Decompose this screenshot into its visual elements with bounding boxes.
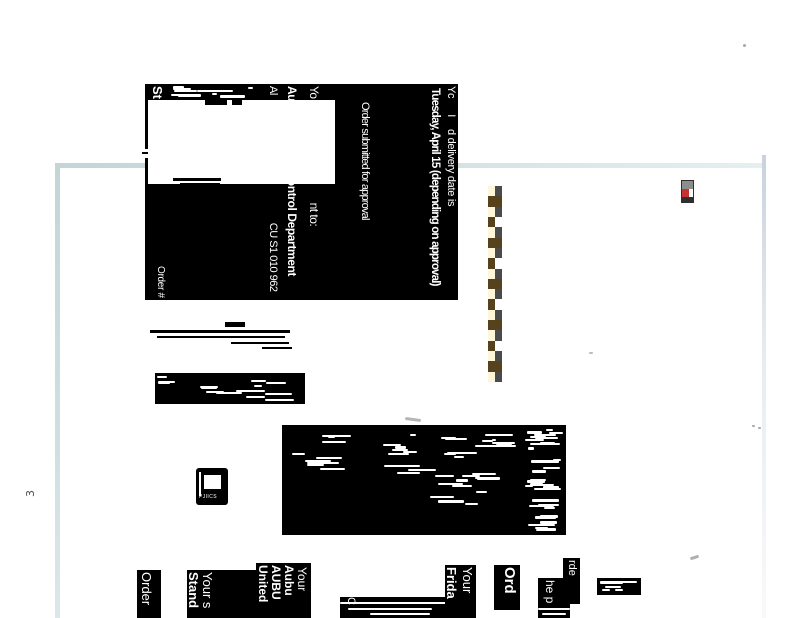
footer-ord-text: Ord [502, 567, 517, 594]
checker-row [488, 248, 502, 258]
scan-streak [150, 330, 290, 333]
scan-speckle [589, 352, 593, 354]
footer-strip-streaked: C [340, 597, 452, 618]
logo-stamp-line [199, 472, 201, 496]
address-code-text: CU S1 010 962 [267, 223, 279, 292]
footer-strip-standard: Your s Stand [187, 570, 257, 618]
checker-row [488, 289, 502, 299]
footer-order-text: Order [140, 572, 153, 605]
footer-your-b-text: Your [461, 567, 474, 593]
garbled-text-noise [157, 375, 177, 387]
footer-united-text: United [257, 565, 269, 602]
department-text: tion Control Department [285, 147, 299, 276]
page-edge-left [55, 163, 60, 618]
garbled-body-block [282, 425, 566, 535]
footer-rde-text: rde [566, 560, 577, 576]
footer-stand-text: Stand [187, 572, 200, 608]
scan-streak [157, 336, 285, 338]
scan-artifact [142, 152, 148, 154]
logo-stamp-glyphs: PJIICS [199, 494, 217, 500]
scan-speckle [752, 425, 755, 427]
page-edge-right [762, 155, 766, 618]
garbled-separator: I [445, 114, 457, 117]
footer-frida-text: Frida [445, 567, 458, 599]
garbled-text-strip [155, 373, 305, 404]
garbled-text-noise [525, 428, 563, 532]
white-redaction-box [148, 100, 335, 184]
scan-artifact [180, 183, 220, 186]
checker-row [488, 258, 502, 268]
garbled-text-noise [195, 375, 295, 402]
header-corner-text: St [151, 86, 164, 99]
order-status-text: Order submitted for approval [359, 102, 370, 220]
checker-row [488, 341, 502, 351]
footer-strip-rde: rde [563, 558, 580, 604]
delivery-date-intro-line: YcId delivery date is [445, 86, 456, 206]
checker-row [488, 186, 502, 196]
address-line: AlCU S1 010 962 [267, 86, 278, 292]
tiny-thumbnail-icon [681, 180, 694, 203]
logo-stamp-icon: PJIICS [196, 468, 228, 505]
sent-to-fragment-end: nt to: [307, 203, 321, 227]
garbled-text-noise [287, 433, 352, 471]
logo-stamp-screen [204, 475, 221, 489]
scan-streak [262, 347, 292, 349]
scan-streak [225, 322, 245, 327]
scan-streak [348, 608, 432, 610]
sent-to-fragment-start: Yo [307, 86, 321, 99]
checker-row [488, 217, 502, 227]
footer-your-s-text: Your s [201, 572, 214, 608]
footer-aubu-caps-text: AUBU [270, 565, 282, 600]
checker-row [488, 196, 502, 206]
scan-streak [542, 613, 566, 615]
checker-row [488, 238, 502, 248]
scan-artifact [173, 178, 221, 181]
footer-aubu-text: Aubu [283, 565, 295, 596]
scan-streak [538, 608, 570, 610]
sent-to-line: Yont to: [308, 86, 320, 226]
org-fragment: Au [285, 86, 299, 101]
color-checker-strip [488, 186, 502, 382]
footer-strip-order: Order [137, 570, 161, 618]
scan-artifact [186, 188, 214, 190]
footer-strip-address: Your Aubu AUBU United [256, 563, 311, 618]
order-header-block: YcId delivery date is Tuesday, April 15 … [145, 84, 458, 300]
department-line: Aution Control Department [286, 86, 298, 276]
scan-streak [370, 613, 430, 615]
scan-speckle [758, 427, 761, 429]
checker-row [488, 361, 502, 371]
garbled-text-noise [367, 430, 427, 460]
scan-streak [340, 602, 452, 604]
delivery-date-text: Tuesday, April 15 (depending on approval… [429, 88, 441, 286]
order-number-label: Order # [155, 266, 165, 298]
checker-row [488, 330, 502, 340]
checker-row [488, 372, 502, 382]
checker-row [488, 299, 502, 309]
scan-speckle [690, 555, 699, 561]
checker-row [488, 207, 502, 217]
checker-row [488, 310, 502, 320]
checker-row [488, 351, 502, 361]
checker-row [488, 269, 502, 279]
scanned-page: YcId delivery date is Tuesday, April 15 … [0, 0, 800, 618]
footer-your-text: Your [296, 567, 308, 591]
footer-strip-noise [597, 578, 641, 595]
checker-row [488, 227, 502, 237]
page-number: 3 [24, 490, 37, 497]
address-fragment: Al [267, 86, 279, 95]
thumbnail-gray-area [682, 181, 693, 189]
thumbnail-dark-area [682, 197, 693, 202]
delivery-intro-text: d delivery date is [445, 129, 457, 206]
delivery-intro-fragment: Yc [445, 86, 457, 98]
checker-row [488, 279, 502, 289]
garbled-text-noise [599, 580, 639, 593]
scan-streak [231, 342, 289, 344]
footer-he-p-text: he p [544, 580, 556, 603]
footer-strip-friday: Your Frida [445, 565, 476, 618]
scan-artifact [232, 97, 242, 105]
garbled-text-noise [169, 85, 255, 98]
footer-strip-ord: Ord [494, 565, 520, 610]
scan-speckle [405, 417, 421, 422]
scan-speckle [743, 44, 746, 47]
garbled-text-noise [477, 430, 522, 455]
checker-row [488, 320, 502, 330]
